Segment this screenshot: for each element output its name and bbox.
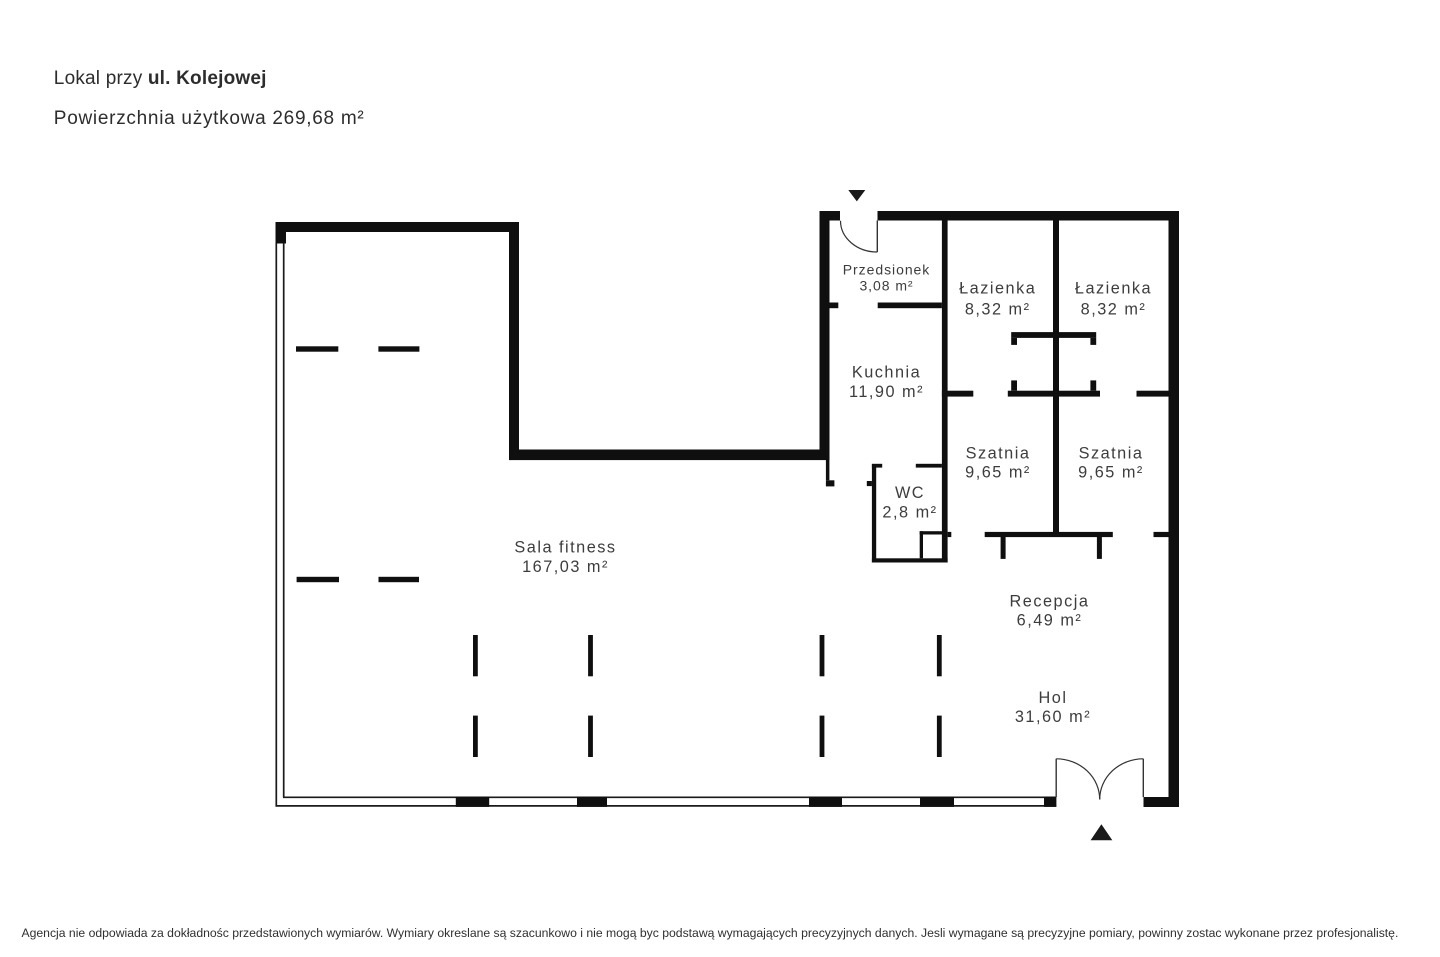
svg-text:Sala fitness: Sala fitness xyxy=(514,538,616,556)
svg-text:Łazienka: Łazienka xyxy=(959,280,1036,298)
svg-text:31,60 m²: 31,60 m² xyxy=(1015,708,1091,726)
svg-text:8,32 m²: 8,32 m² xyxy=(965,301,1031,319)
svg-text:WC: WC xyxy=(895,484,925,502)
svg-text:2,8 m²: 2,8 m² xyxy=(882,503,937,521)
svg-text:Szatnia: Szatnia xyxy=(966,444,1031,462)
svg-text:Recepcja: Recepcja xyxy=(1010,593,1090,611)
svg-text:Kuchnia: Kuchnia xyxy=(852,364,921,382)
svg-text:11,90 m²: 11,90 m² xyxy=(849,383,924,401)
svg-text:Hol: Hol xyxy=(1039,689,1068,707)
svg-text:9,65 m²: 9,65 m² xyxy=(1078,463,1144,481)
svg-text:8,32 m²: 8,32 m² xyxy=(1081,301,1147,319)
svg-text:Łazienka: Łazienka xyxy=(1075,280,1152,298)
svg-text:3,08 m²: 3,08 m² xyxy=(859,277,913,293)
svg-text:167,03 m²: 167,03 m² xyxy=(522,558,609,576)
svg-text:Szatnia: Szatnia xyxy=(1079,444,1144,462)
svg-text:6,49 m²: 6,49 m² xyxy=(1017,612,1083,630)
svg-text:9,65 m²: 9,65 m² xyxy=(965,463,1031,481)
svg-text:Przedsionek: Przedsionek xyxy=(843,262,931,278)
